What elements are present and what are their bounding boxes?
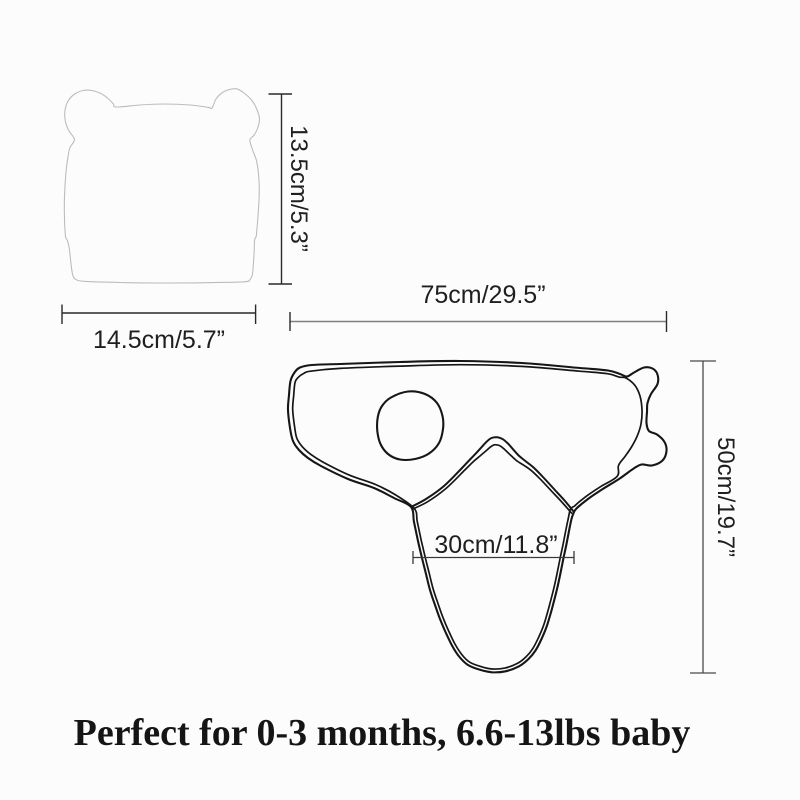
svg-text:14.5cm/5.7”: 14.5cm/5.7” — [93, 326, 225, 354]
svg-text:13.5cm/5.3”: 13.5cm/5.3” — [285, 125, 312, 252]
svg-text:50cm/19.7”: 50cm/19.7” — [712, 437, 739, 557]
svg-text:30cm/11.8”: 30cm/11.8” — [434, 531, 557, 559]
svg-text:75cm/29.5”: 75cm/29.5” — [420, 281, 545, 309]
